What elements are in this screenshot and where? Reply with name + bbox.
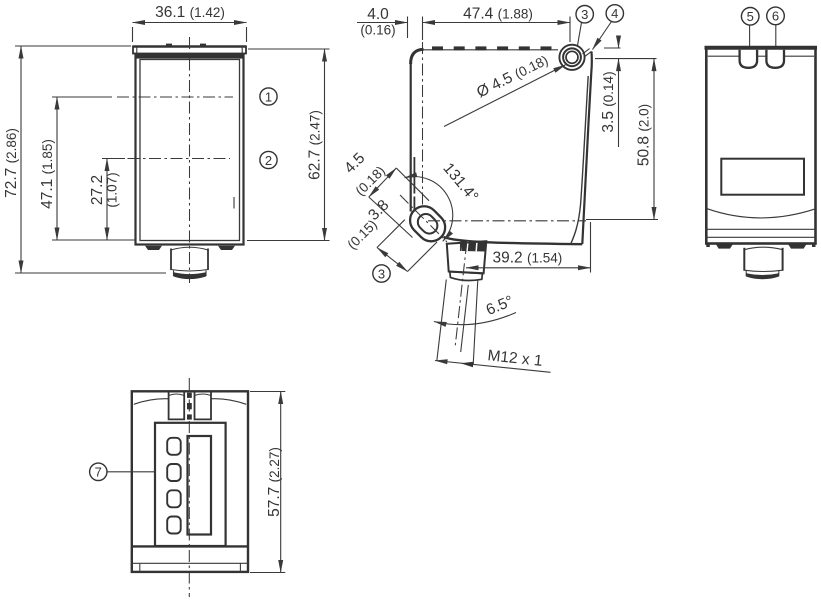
svg-text:50.8 (2.0): 50.8 (2.0)	[636, 104, 653, 166]
svg-text:57.7 (2.27): 57.7 (2.27)	[266, 447, 283, 517]
svg-text:3.5 (0.14): 3.5 (0.14)	[600, 71, 617, 132]
svg-text:4: 4	[611, 6, 618, 21]
svg-text:(0.16): (0.16)	[360, 23, 395, 38]
svg-text:47.4 (1.88): 47.4 (1.88)	[463, 6, 533, 23]
svg-text:47.1 (1.85): 47.1 (1.85)	[39, 139, 56, 209]
svg-text:62.7 (2.47): 62.7 (2.47)	[307, 110, 324, 180]
svg-text:7: 7	[95, 465, 102, 480]
svg-text:3: 3	[581, 7, 588, 22]
svg-text:1: 1	[265, 89, 272, 104]
svg-text:6: 6	[772, 9, 779, 24]
svg-text:72.7 (2.86): 72.7 (2.86)	[3, 128, 20, 198]
svg-text:(0.15): (0.15)	[344, 217, 380, 253]
svg-text:131.4°: 131.4°	[439, 160, 481, 205]
svg-text:27.2: 27.2	[89, 175, 106, 205]
svg-text:3: 3	[378, 266, 385, 281]
svg-text:4.0: 4.0	[367, 6, 389, 23]
svg-text:4.5: 4.5	[341, 150, 368, 177]
svg-text:Ø 4.5 (0.18): Ø 4.5 (0.18)	[474, 52, 551, 102]
svg-text:36.1 (1.42): 36.1 (1.42)	[155, 4, 225, 21]
svg-text:5: 5	[747, 9, 754, 24]
svg-text:2: 2	[265, 153, 272, 168]
svg-text:39.2 (1.54): 39.2 (1.54)	[493, 250, 563, 267]
